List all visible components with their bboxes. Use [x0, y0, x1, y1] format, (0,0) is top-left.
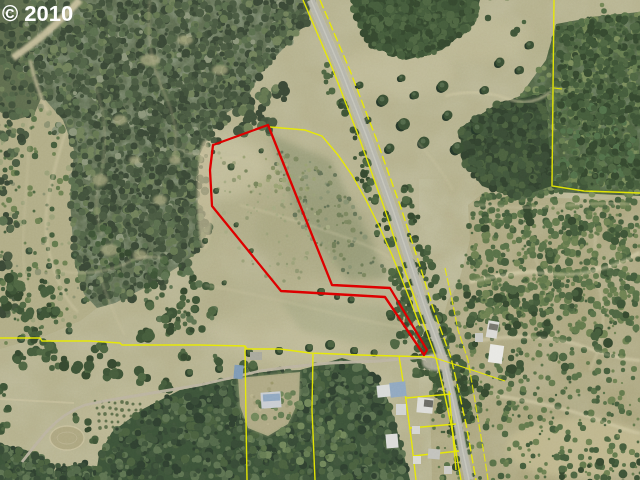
svg-text:© 2010: © 2010: [2, 1, 73, 26]
